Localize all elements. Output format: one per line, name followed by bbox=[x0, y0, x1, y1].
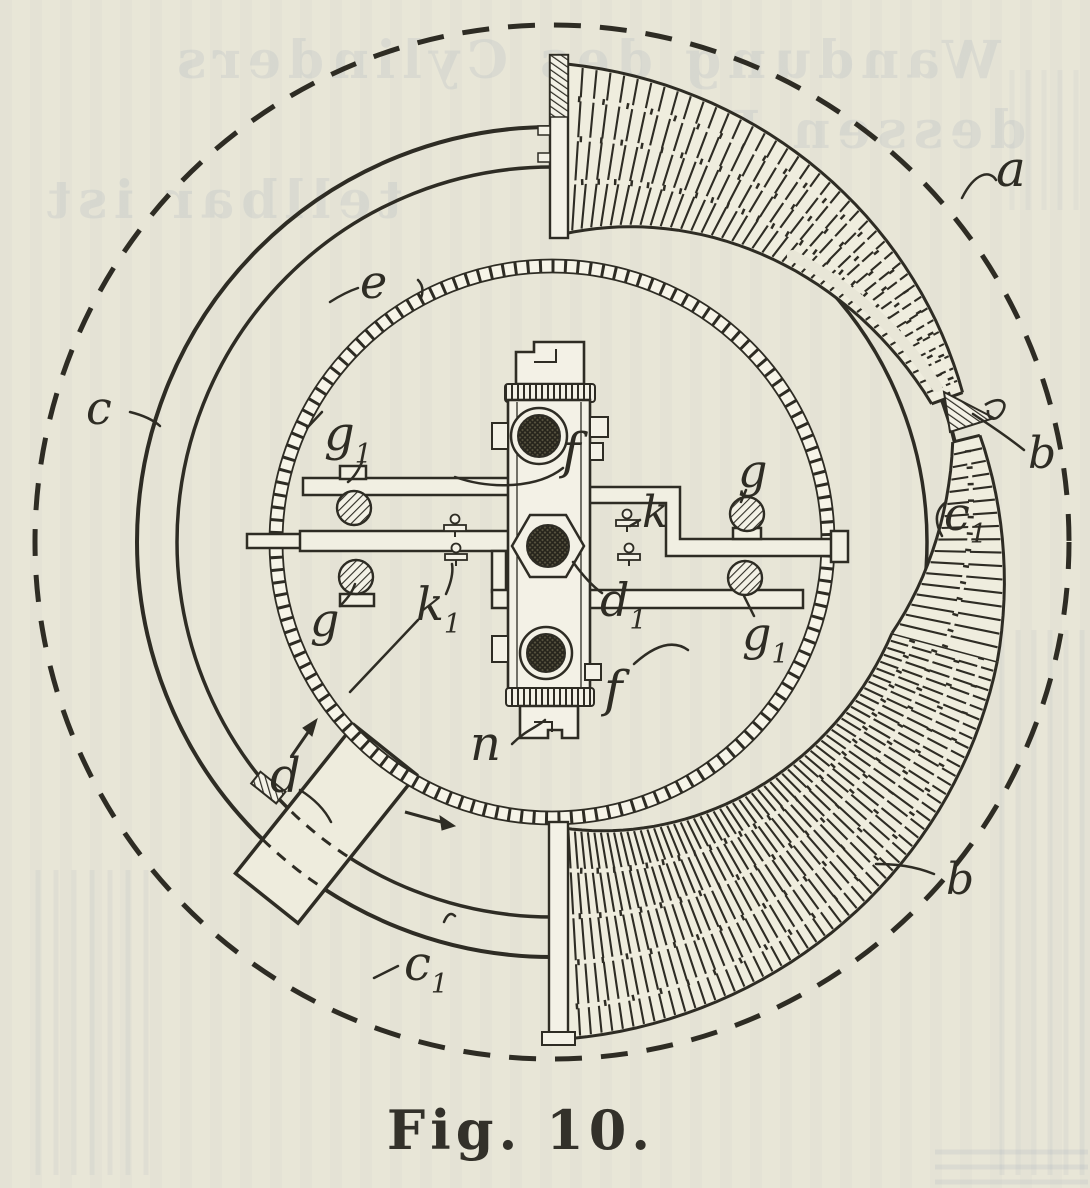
mid-left-bar-cap bbox=[247, 534, 307, 548]
side-tab bbox=[590, 443, 603, 460]
label-e: e bbox=[360, 255, 387, 309]
label-g1-bottom-right: g1 bbox=[742, 607, 789, 670]
lower-left-limb bbox=[492, 551, 506, 592]
central-column bbox=[492, 342, 608, 738]
rotation-arrow-shaft bbox=[405, 812, 445, 823]
label-b-tip: b bbox=[1028, 428, 1056, 479]
side-tab bbox=[492, 423, 508, 449]
label-a: a bbox=[996, 140, 1026, 198]
screw-head-f-top bbox=[518, 415, 560, 457]
label-d1: d1 bbox=[600, 573, 647, 636]
slider-block-d bbox=[235, 725, 416, 923]
label-d: d bbox=[270, 748, 301, 804]
label-f-lower: f bbox=[600, 660, 630, 718]
label-k: k bbox=[642, 487, 669, 538]
screw-head-center bbox=[527, 525, 569, 567]
label-g-top-right: g bbox=[738, 444, 767, 498]
sector-b-tip-wedge bbox=[944, 392, 1004, 432]
roller-g1-bottom-right bbox=[728, 561, 762, 595]
label-c: c bbox=[86, 381, 112, 435]
side-tab bbox=[585, 664, 601, 680]
laminated-sector-b-tail bbox=[892, 435, 1004, 661]
arrow-d-head bbox=[303, 719, 317, 736]
label-g-bottom-left: g bbox=[310, 593, 339, 647]
scanned-book-page: Wandung des Cylinders dessen Reib tellba… bbox=[0, 0, 1090, 1188]
right-bar-end-cap bbox=[831, 531, 848, 562]
knurled-ring-bottom bbox=[506, 688, 594, 706]
leader-f-lower bbox=[634, 645, 688, 664]
roller-g-top-right bbox=[730, 497, 764, 531]
label-b-lower: b bbox=[946, 854, 974, 905]
sector-a-end-bar bbox=[538, 55, 568, 238]
label-n: n bbox=[470, 716, 501, 772]
label-c1-bottom: c1 bbox=[404, 936, 448, 1000]
figure-caption: Fig. 10. bbox=[0, 1098, 1090, 1162]
upper-right-z-bar bbox=[559, 487, 833, 556]
rotation-arrow-head bbox=[440, 816, 455, 830]
mid-left-bar bbox=[300, 531, 511, 551]
screw-head-f-bottom bbox=[527, 634, 565, 672]
roller-g1-top-left bbox=[337, 491, 371, 525]
label-k1: k1 bbox=[416, 577, 461, 640]
label-g1-top-left: g1 bbox=[324, 406, 372, 470]
figure-10-diagram: a b b c c1 c1 d d1 e f f g1 g g g1 k k1 … bbox=[0, 0, 1090, 1188]
side-tab bbox=[492, 636, 508, 662]
roller-g-bottom-left bbox=[339, 560, 373, 594]
leader-a bbox=[962, 174, 996, 198]
side-tab bbox=[590, 417, 608, 437]
